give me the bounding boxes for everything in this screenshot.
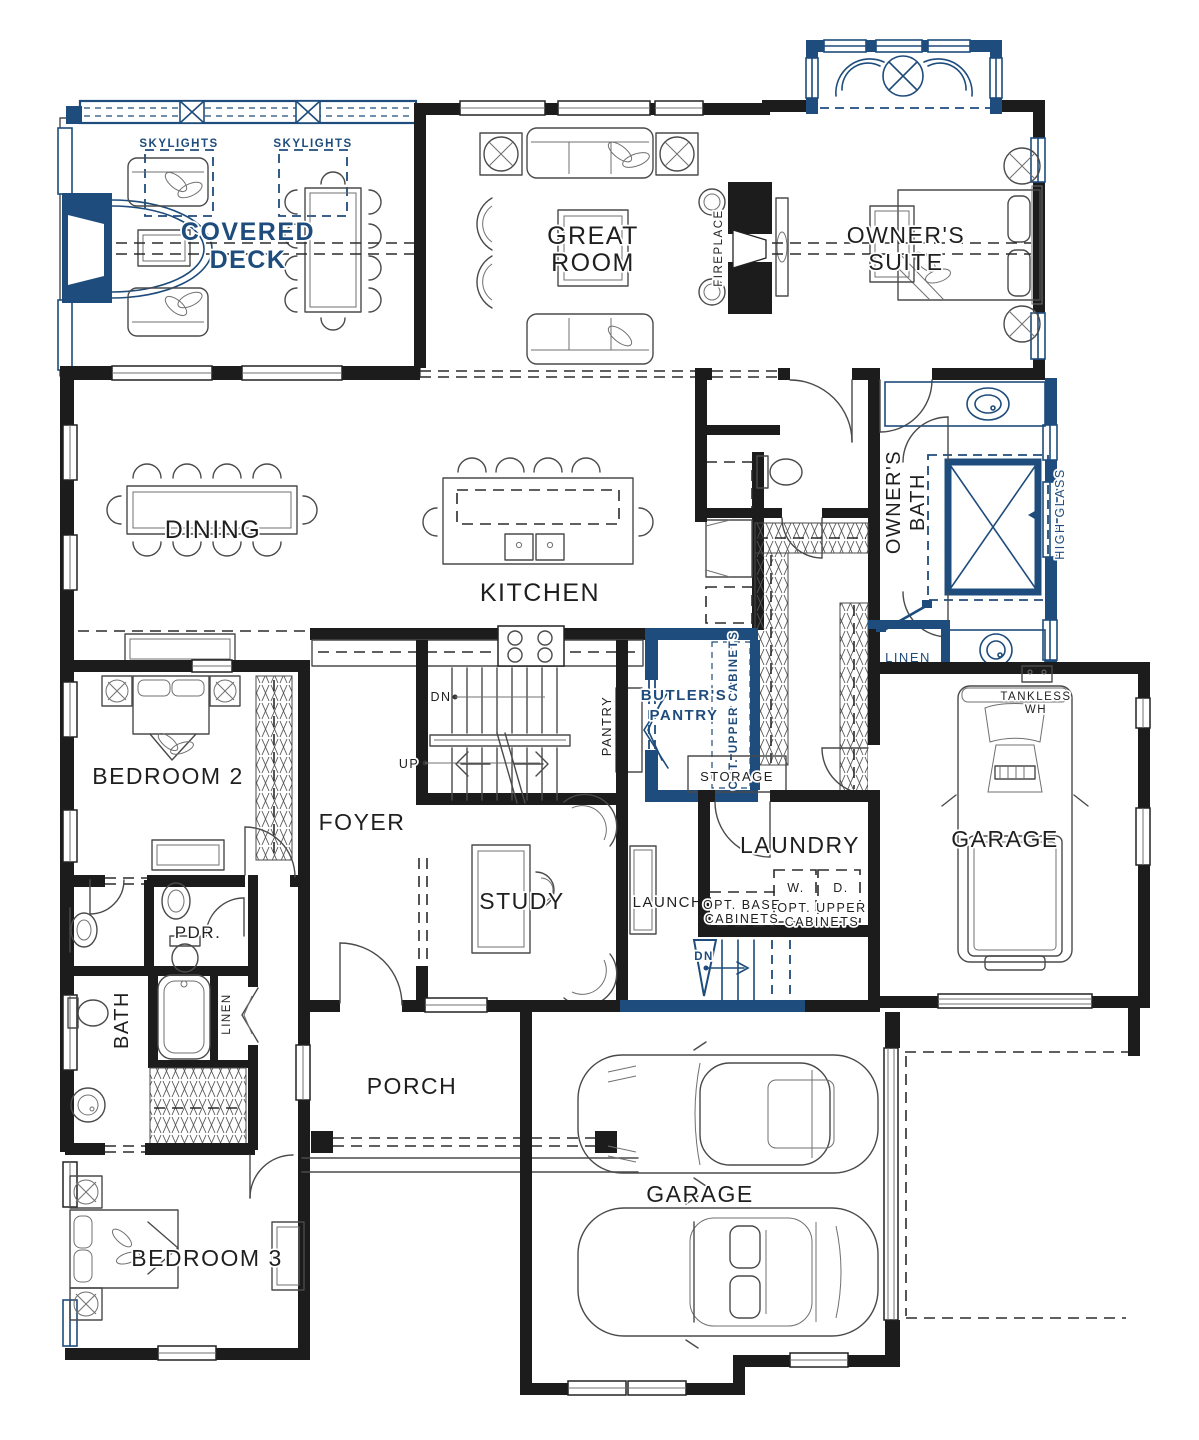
fireplace-icon — [728, 182, 788, 314]
dining-label: DINING — [165, 516, 262, 544]
owners-bath-area: OWNER'S BATH HIGH GLASS LINEN — [868, 368, 1067, 672]
great-room-chair-icon — [477, 198, 492, 308]
garage-side-label: GARAGE — [951, 826, 1058, 852]
pantry-label: PANTRY — [599, 696, 614, 757]
garage-main-area: GARAGE — [520, 1012, 1126, 1395]
corner-cabinet-icon — [706, 520, 752, 577]
foyer-label: FOYER — [319, 809, 406, 835]
bath-pdr-area: BATH LINEN PDR. — [63, 875, 258, 1150]
dresser-icon — [152, 840, 224, 870]
great-room-sofa-icon — [527, 128, 653, 178]
owners-bath-label: OWNER'S — [883, 450, 905, 554]
garage-side-area: TANKLESS WH GARAGE — [868, 662, 1150, 1056]
skylights-label: SKYLIGHTS — [273, 138, 352, 150]
deck-dining-table-icon — [285, 172, 381, 330]
laundry-label: LAUNDRY — [740, 832, 860, 858]
pdr-label: PDR. — [175, 923, 222, 942]
covered-deck-label: DECK — [210, 246, 287, 274]
great-room-sofa-icon — [527, 314, 653, 364]
study-chair-icon — [564, 794, 617, 1005]
deck-sofa-icon — [128, 288, 208, 336]
tankless-wh-label: TANKLESS — [1000, 691, 1071, 703]
owners-bath-label: BATH — [907, 473, 929, 531]
bedroom3-label: BEDROOM 3 — [131, 1245, 283, 1271]
great-room-label: GREAT — [547, 222, 639, 250]
center-hall-area — [695, 368, 880, 794]
pdr-sink-icon — [162, 883, 190, 919]
stairs-up-label: UP — [399, 757, 419, 771]
skylights-label: SKYLIGHTS — [139, 138, 218, 150]
bay-window-icon — [806, 40, 1002, 114]
opt-base-cabinets-label: CABINETS — [705, 912, 780, 926]
vanity-sink-icon — [885, 382, 1045, 426]
bath-sink-icon — [71, 1088, 105, 1122]
storage-label: STORAGE — [700, 769, 774, 784]
great-room-label: ROOM — [551, 249, 635, 277]
porch-column-icon — [311, 1131, 617, 1153]
owners-suite-area: OWNER'S SUITE — [762, 40, 1045, 375]
garage-main-label: GARAGE — [646, 1181, 753, 1207]
launch-bench-icon — [630, 846, 656, 934]
butlers-pantry-label: PANTRY — [650, 707, 719, 724]
porch-area: PORCH — [296, 943, 880, 1172]
tankless-wh-label: WH — [1025, 704, 1047, 716]
kitchen-label: KITCHEN — [480, 579, 600, 607]
covered-deck-area: SKYLIGHTS SKYLIGHTS COVERED DECK — [58, 101, 420, 380]
vanity-sink-icon — [70, 908, 97, 952]
bath-label: BATH — [111, 991, 133, 1049]
basement-dn-label: DN — [694, 951, 714, 963]
opt-base-cabinets-label: OPT. BASE — [703, 898, 781, 912]
owners-suite-label: SUITE — [868, 249, 943, 275]
linen-hall-label: LINEN — [221, 993, 233, 1034]
floor-plan-drawing: SKYLIGHTS SKYLIGHTS COVERED DECK — [0, 0, 1199, 1440]
bathtub-icon — [158, 975, 210, 1059]
dryer-label: D. — [833, 881, 849, 895]
butlers-pantry-label: BUTLER'S — [641, 687, 727, 704]
staircase-icon — [423, 668, 571, 803]
launch-label: LAUNCH — [633, 894, 704, 911]
kitchen-island-icon — [423, 458, 653, 564]
high-glass-label: HIGH GLASS — [1053, 468, 1067, 559]
washer-label: W. — [787, 881, 805, 895]
porch-label: PORCH — [367, 1073, 458, 1099]
bed-icon — [102, 676, 240, 760]
owners-suite-label: OWNER'S — [847, 222, 965, 248]
shower-icon — [928, 455, 1048, 600]
bedroom2-label: BEDROOM 2 — [92, 763, 244, 789]
coupe-car-icon — [578, 1042, 878, 1186]
opt-upper-cabinets2-label: OPT. UPPER — [777, 901, 866, 915]
convertible-car-icon — [578, 1196, 878, 1348]
opt-upper-cabinets2-label: CABINETS — [785, 915, 860, 929]
cooktop-icon — [498, 626, 564, 666]
bedroom2-area: BEDROOM 2 — [63, 676, 310, 887]
stairs-dn-label: DN — [430, 690, 451, 704]
study-label: STUDY — [479, 888, 564, 914]
fireplace-label: FIREPLACE — [713, 209, 725, 286]
great-room-area: GREAT ROOM FIREPLACE — [414, 101, 788, 377]
floor-plan: SKYLIGHTS SKYLIGHTS COVERED DECK — [0, 0, 1199, 1440]
speaker-icon — [480, 133, 698, 175]
covered-deck-label: COVERED — [181, 218, 315, 246]
deck-sofa-icon — [128, 158, 208, 206]
opt-upper-cabinets-label: OPT. UPPER CABINETS — [728, 631, 740, 790]
